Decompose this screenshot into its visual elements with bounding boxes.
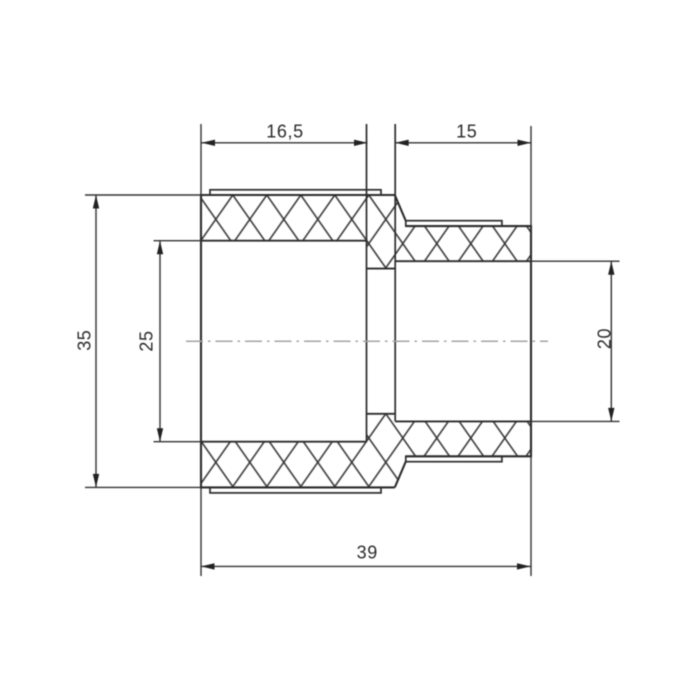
svg-text:20: 20 <box>595 328 615 349</box>
svg-text:39: 39 <box>357 543 378 563</box>
svg-text:25: 25 <box>137 330 157 351</box>
svg-text:16,5: 16,5 <box>266 122 303 142</box>
svg-text:35: 35 <box>75 330 95 351</box>
svg-text:15: 15 <box>456 122 477 142</box>
